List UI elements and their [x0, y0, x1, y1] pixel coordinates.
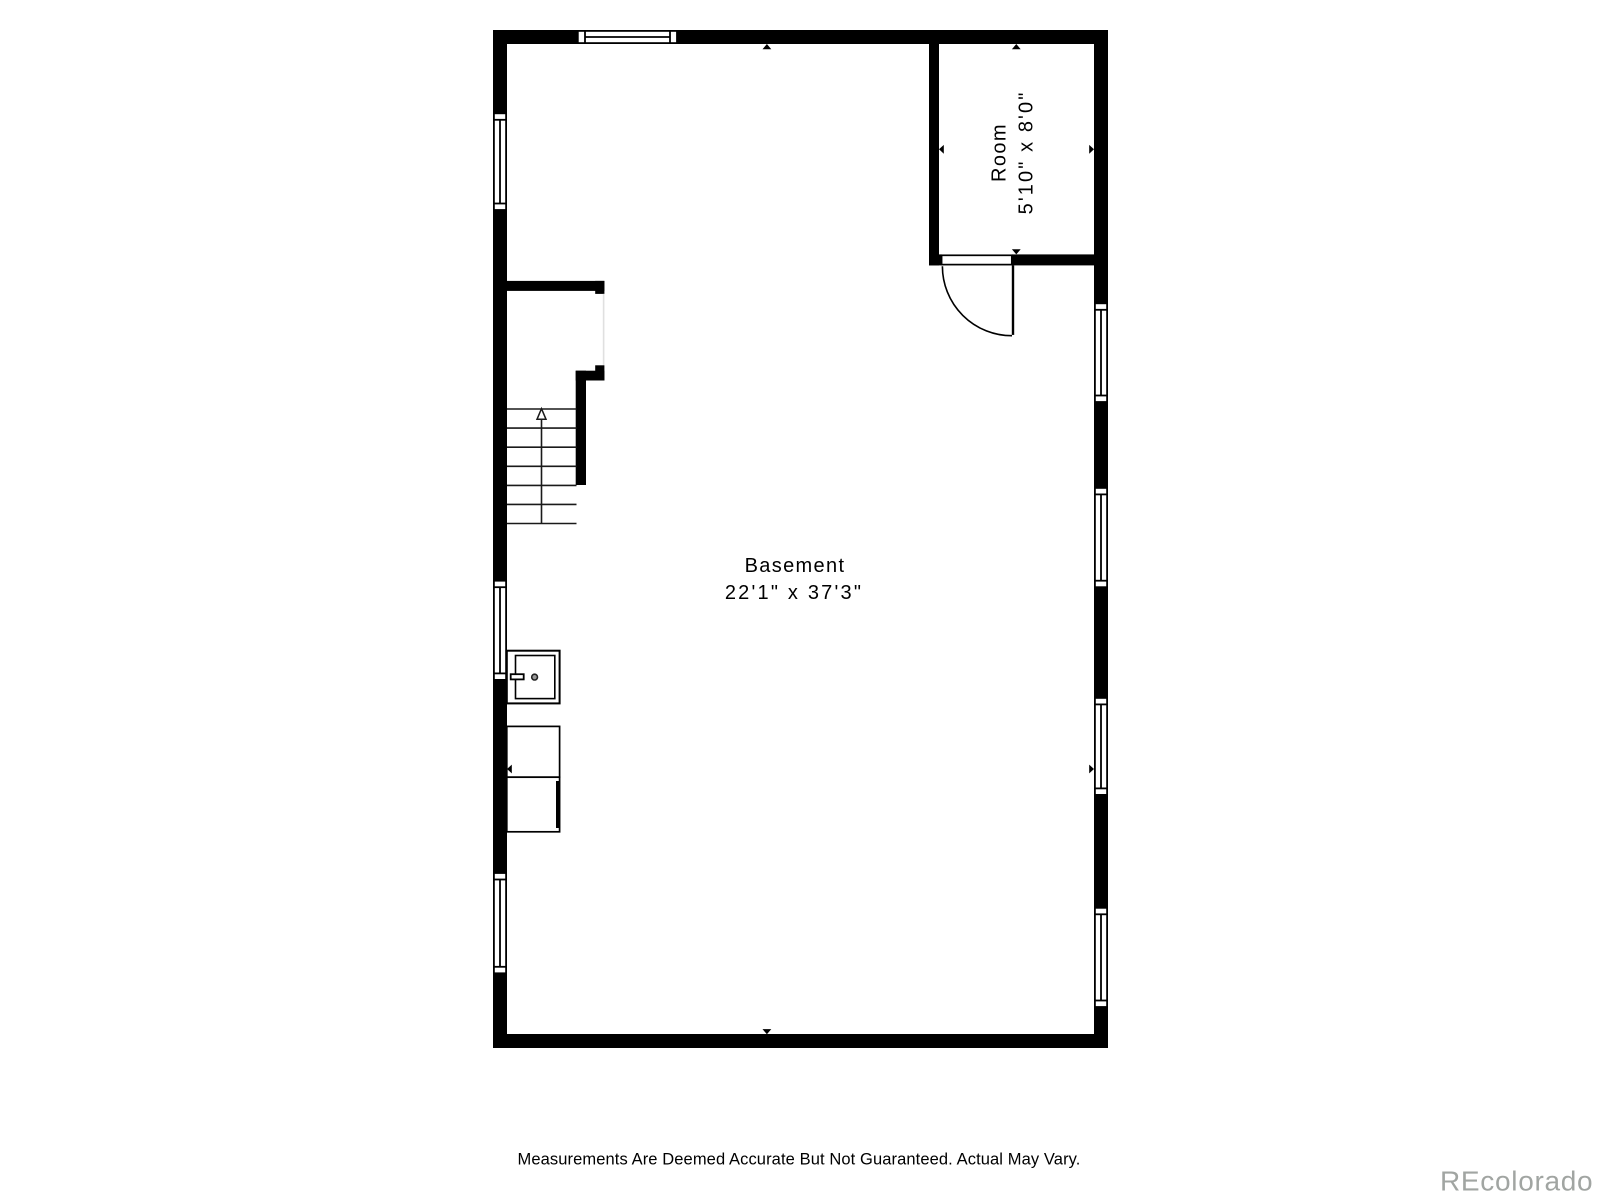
svg-text:REcolorado: REcolorado — [1440, 1165, 1593, 1196]
svg-text:Basement: Basement — [745, 555, 846, 577]
svg-text:Measurements Are Deemed Accura: Measurements Are Deemed Accurate But Not… — [518, 1151, 1081, 1169]
svg-text:Room: Room — [988, 123, 1010, 182]
svg-text:5'10" x 8'0": 5'10" x 8'0" — [1016, 91, 1038, 215]
svg-text:22'1" x 37'3": 22'1" x 37'3" — [725, 582, 863, 604]
